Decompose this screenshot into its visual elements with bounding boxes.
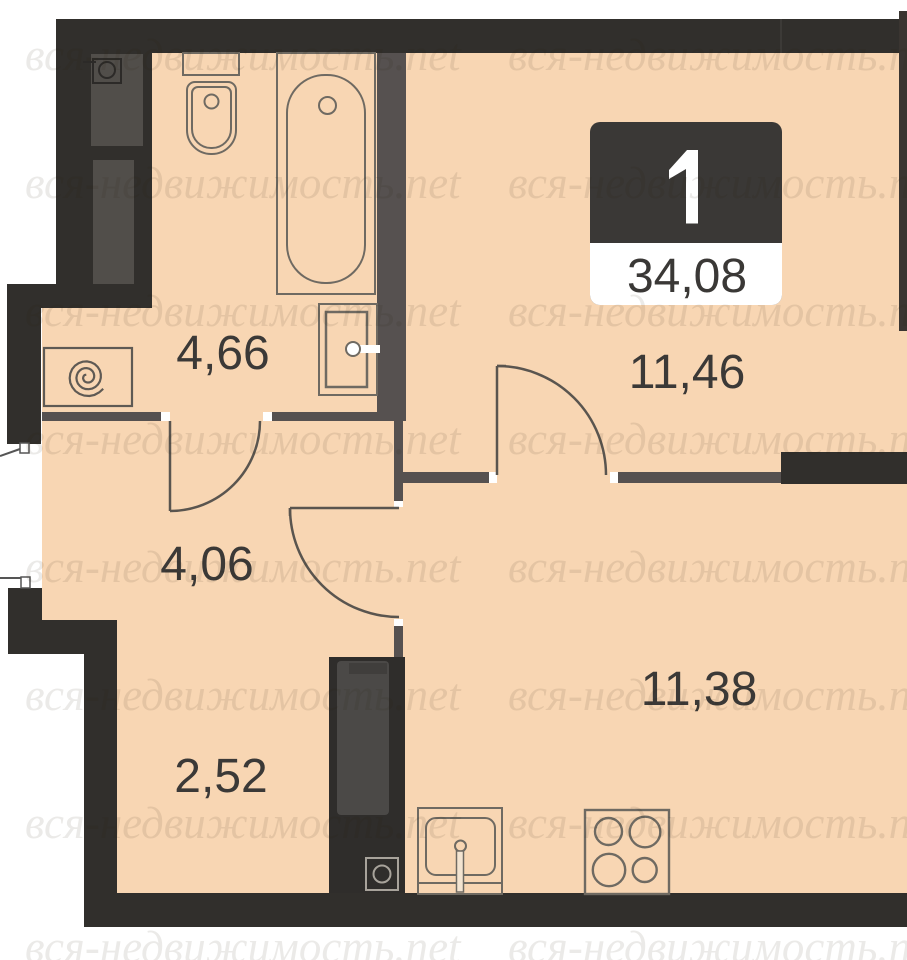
svg-text:вся-недвижимость.net: вся-недвижимость.net xyxy=(508,30,907,80)
svg-text:вся-недвижимость.net: вся-недвижимость.net xyxy=(508,414,907,464)
svg-text:11,46: 11,46 xyxy=(629,346,746,399)
svg-text:вся-недвижимость.net: вся-недвижимость.net xyxy=(508,542,907,592)
svg-text:вся-недвижимость.net: вся-недвижимость.net xyxy=(508,798,907,848)
svg-text:вся-недвижимость.net: вся-недвижимость.net xyxy=(25,286,462,336)
svg-text:вся-недвижимость.net: вся-недвижимость.net xyxy=(508,922,907,960)
svg-text:вся-недвижимость.net: вся-недвижимость.net xyxy=(25,414,462,464)
svg-text:вся-недвижимость.net: вся-недвижимость.net xyxy=(25,670,462,720)
svg-text:2,52: 2,52 xyxy=(174,750,267,803)
svg-text:вся-недвижимость.net: вся-недвижимость.net xyxy=(25,798,462,848)
svg-text:вся-недвижимость.net: вся-недвижимость.net xyxy=(25,922,462,960)
svg-text:вся-недвижимость.net: вся-недвижимость.net xyxy=(508,158,907,208)
svg-text:вся-недвижимость.net: вся-недвижимость.net xyxy=(508,670,907,720)
svg-text:вся-недвижимость.net: вся-недвижимость.net xyxy=(25,30,462,80)
svg-text:вся-недвижимость.net: вся-недвижимость.net xyxy=(25,542,462,592)
svg-text:вся-недвижимость.net: вся-недвижимость.net xyxy=(25,158,462,208)
svg-text:вся-недвижимость.net: вся-недвижимость.net xyxy=(508,286,907,336)
